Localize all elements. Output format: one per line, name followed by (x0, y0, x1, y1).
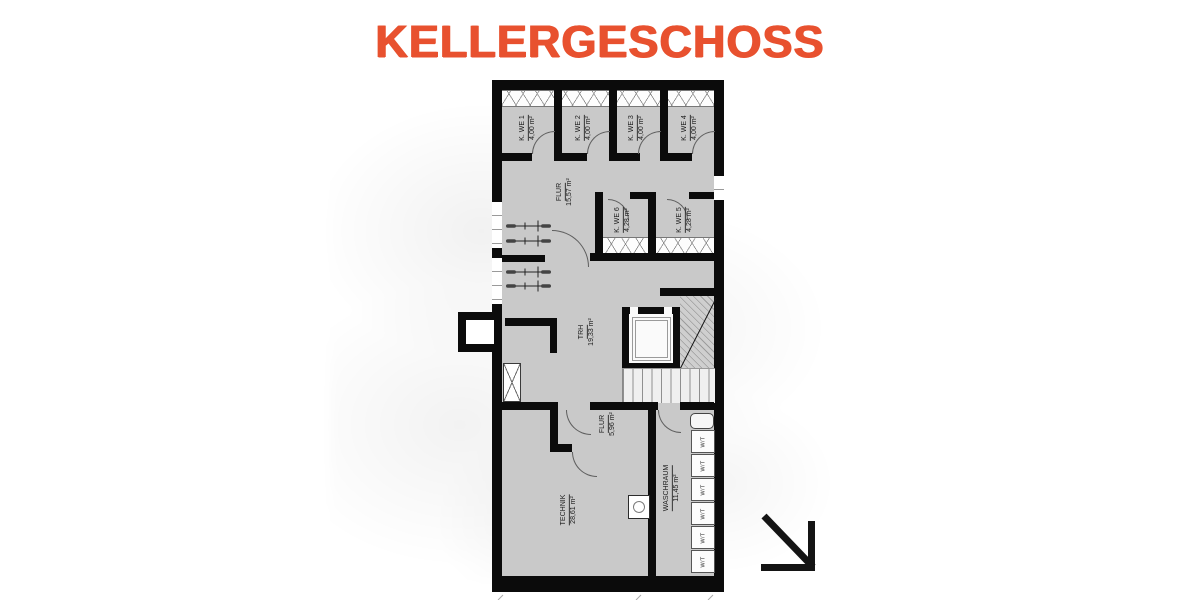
wall-segment (562, 153, 587, 161)
bicycle-icon (505, 266, 553, 278)
room-label-kwe5: K. WE 54,28 m² (676, 207, 694, 233)
ventilation-shaft (503, 363, 521, 402)
dimension-tick (636, 595, 642, 600)
stairs (622, 368, 715, 403)
window (492, 202, 502, 248)
wall-segment (648, 402, 658, 410)
elevator-shaft (622, 307, 680, 370)
room-label-trh: TRH19,33 m² (578, 318, 596, 346)
floor-plan: W/T W/T W/T W/T W/T W/T K. WE 14,00 m² K… (492, 80, 724, 592)
wall-outer-top (492, 80, 724, 90)
bicycle-icon (505, 280, 553, 292)
page-title: KELLERGESCHOSS (0, 16, 1200, 68)
washer-dryer-box: W/T (691, 430, 715, 453)
wall-segment (590, 402, 648, 410)
equipment-drum (633, 501, 645, 513)
wall-segment (595, 192, 603, 261)
wall-segment (660, 90, 668, 161)
wall-segment (648, 410, 656, 576)
washer-dryer-box: W/T (691, 502, 715, 525)
washer-dryer-label: W/T (700, 460, 706, 471)
wall-segment (617, 153, 640, 161)
wall-segment (502, 153, 532, 161)
room-label-technik: TECHNIK28,61 m² (560, 495, 578, 526)
window (714, 176, 724, 200)
elevator-door-notch (630, 307, 638, 314)
room-label-kwe3: K. WE 34,00 m² (628, 115, 646, 141)
window (492, 258, 502, 304)
washer-dryer-box: W/T (691, 478, 715, 501)
room-label-flur-upper: FLUR15,57 m² (556, 178, 574, 206)
wall-segment (550, 444, 572, 452)
lightwell-hatch (502, 90, 714, 107)
wall-segment (590, 253, 714, 261)
washer-dryer-label: W/T (700, 508, 706, 519)
elevator-car-outline (635, 320, 668, 358)
elevator-door-notch (664, 307, 672, 314)
wall-segment (630, 192, 648, 199)
washer-dryer-label: W/T (700, 532, 706, 543)
washer-dryer-label: W/T (700, 436, 706, 447)
sink (690, 413, 714, 429)
dimension-tick (708, 595, 714, 600)
wall-outer-bottom (492, 576, 724, 592)
washer-dryer-box: W/T (691, 454, 715, 477)
bicycle-icon (505, 220, 553, 232)
light-shaft-opening (466, 320, 494, 344)
wall-segment (660, 288, 714, 296)
light-shaft (458, 312, 502, 352)
bicycle-icon (505, 235, 553, 247)
wall-segment (609, 90, 617, 161)
wall-segment (680, 402, 714, 410)
elevator-car (629, 314, 673, 363)
room-label-kwe1: K. WE 14,00 m² (519, 115, 537, 141)
room-label-kwe6: K. WE 64,28 m² (614, 207, 632, 233)
wall-segment (550, 318, 557, 353)
wall-segment (502, 255, 545, 262)
equipment-box (628, 495, 650, 519)
wall-segment (554, 90, 562, 161)
wall-segment (668, 153, 692, 161)
washer-dryer-label: W/T (700, 556, 706, 567)
wall-segment (689, 192, 714, 199)
room-label-kwe2: K. WE 24,00 m² (575, 115, 593, 141)
room-label-flur-lower: FLUR5,96 m² (599, 412, 617, 436)
washer-dryer-label: W/T (700, 484, 706, 495)
washer-dryer-box: W/T (691, 550, 715, 573)
room-label-waschraum: WASCHRAUM11,45 m² (663, 465, 681, 511)
washer-dryer-box: W/T (691, 526, 715, 549)
wall-outer-right (714, 80, 724, 592)
dimension-tick (498, 595, 504, 600)
room-label-kwe4: K. WE 44,00 m² (681, 115, 699, 141)
wall-segment (648, 192, 656, 261)
direction-arrow-icon (758, 508, 822, 574)
